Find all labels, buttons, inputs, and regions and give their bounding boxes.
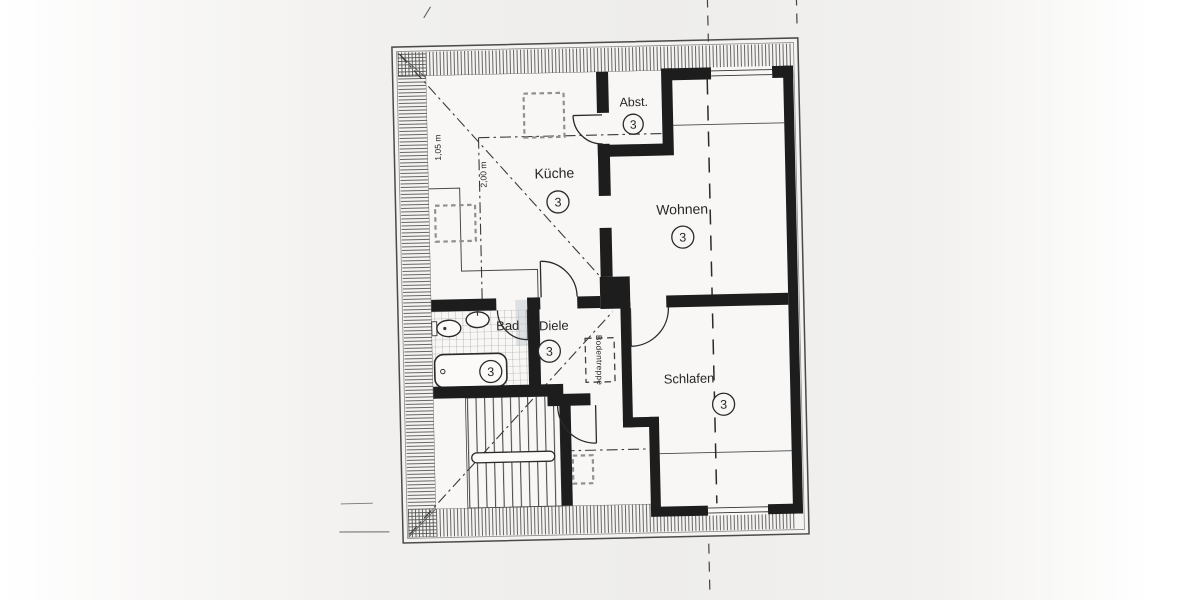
room-label-diele: Diele xyxy=(539,318,569,334)
wall-bottom-schlafen-right xyxy=(768,504,795,515)
wall-kueche-east-b xyxy=(600,228,613,277)
room-number-schlafen: 3 xyxy=(720,398,727,412)
wall-abst-bottom xyxy=(598,143,665,157)
scanned-floor-plan-page: Küche 3 Abst. 3 Wohnen 3 Bad 3 Diele 3 S… xyxy=(0,0,1200,600)
attic-stairs-label: Bodentreppe xyxy=(594,335,604,386)
room-label-wohnen: Wohnen xyxy=(656,201,708,218)
plan-sheet: Küche 3 Abst. 3 Wohnen 3 Bad 3 Diele 3 S… xyxy=(327,0,810,600)
artifact-dashed-top-right xyxy=(796,0,797,31)
wall-landing-top xyxy=(547,393,590,406)
wall-bad-top xyxy=(431,298,496,311)
dim-label-105: 1,05 m xyxy=(432,135,443,161)
room-label-schlafen: Schlafen xyxy=(664,370,715,386)
room-label-abst: Abst. xyxy=(619,95,648,110)
staircase xyxy=(465,396,561,508)
room-label-kueche: Küche xyxy=(534,165,574,182)
wall-abst-east xyxy=(661,68,674,155)
stair-handrail xyxy=(472,451,555,463)
artifact-line-left-b xyxy=(339,531,389,533)
room-label-bad: Bad xyxy=(496,318,519,334)
room-number-diele: 3 xyxy=(546,345,553,359)
ridge-line-extension-bottom xyxy=(709,544,710,598)
room-number-bad: 3 xyxy=(487,365,494,379)
floor-plan-svg: Küche 3 Abst. 3 Wohnen 3 Bad 3 Diele 3 S… xyxy=(0,0,1200,600)
toilet xyxy=(437,320,461,337)
wall-mid-b xyxy=(577,296,600,309)
artifact-line-left-a xyxy=(341,503,373,504)
schlafen-interior-extension xyxy=(659,426,793,507)
ridge-line-extension-top xyxy=(707,0,708,41)
artifact-tick-top-left xyxy=(424,7,431,18)
wall-mid-junction xyxy=(600,276,631,309)
dim-label-200: 2,00 m xyxy=(478,162,489,188)
room-number-abst: 3 xyxy=(630,118,637,132)
wall-abst-west-upper xyxy=(596,72,609,113)
room-number-kueche: 3 xyxy=(554,195,561,209)
room-number-wohnen: 3 xyxy=(679,231,686,245)
wall-schlafen-west-lower xyxy=(649,417,661,511)
window-wohnen xyxy=(711,66,772,79)
window-schlafen xyxy=(708,504,768,515)
